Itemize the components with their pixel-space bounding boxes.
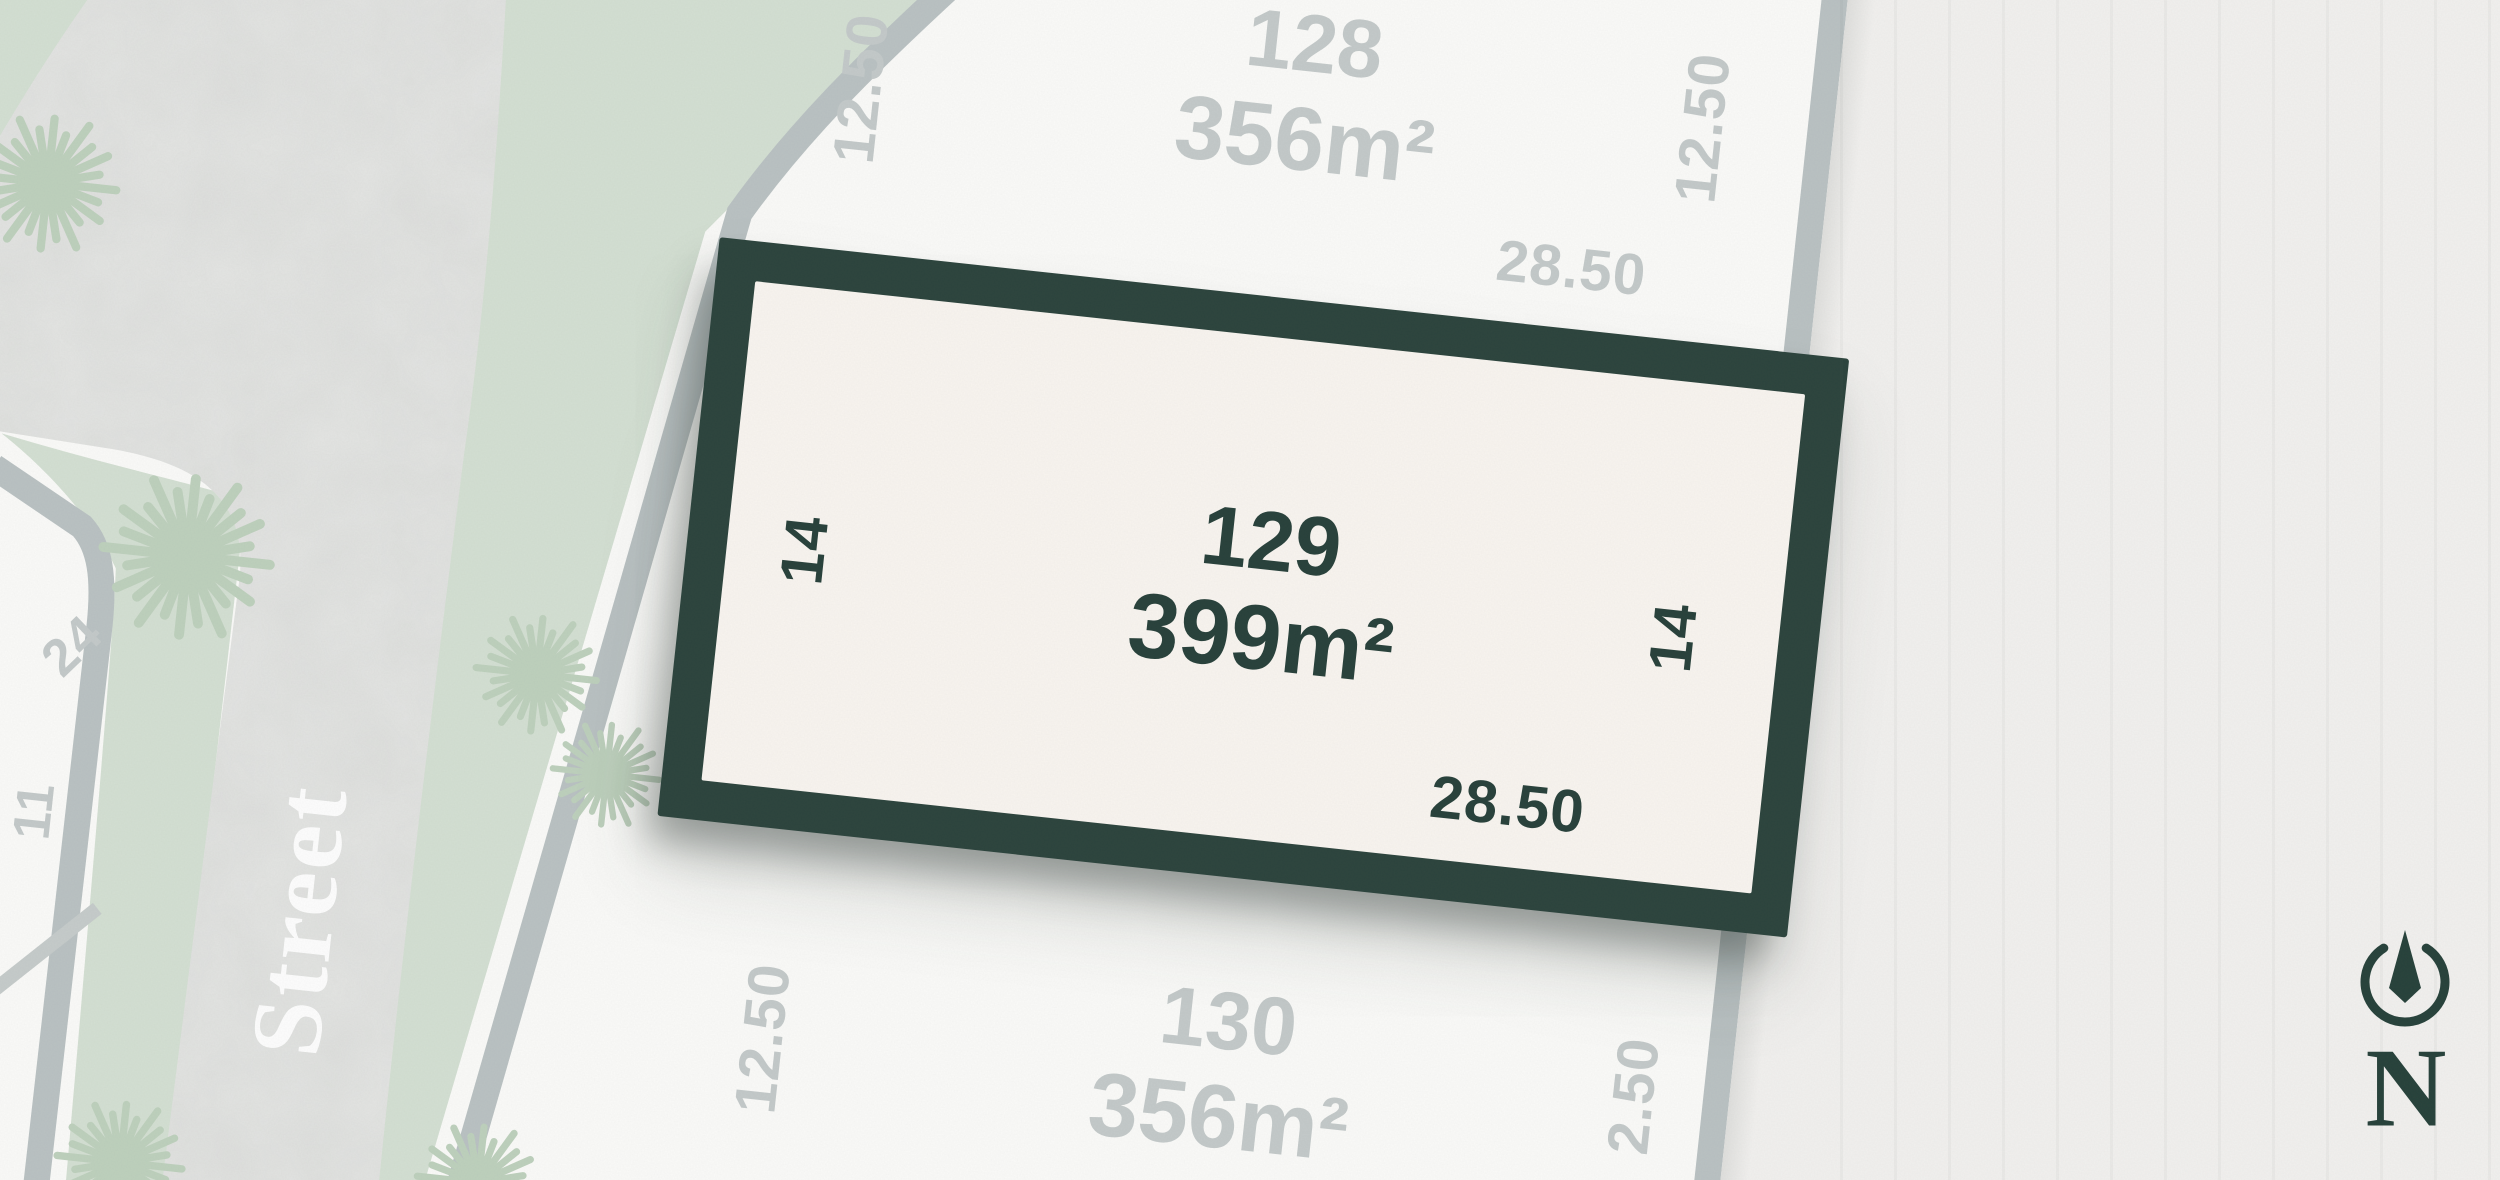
lot-129-dim-frontage: 28.50 — [1427, 767, 1588, 843]
plan-map-rotated-group: Street 24 11 128 356m² 12.50 12.50 28.50… — [0, 0, 2500, 1180]
lot-130-region[interactable]: 130 356m² — [1084, 963, 1363, 1180]
lot-128-dim-east: 12.50 — [1666, 50, 1740, 206]
lot-130-dim-east: 2.50 — [1599, 1035, 1669, 1157]
lot-130-dim-west: 12.50 — [726, 961, 800, 1117]
west-lot-dim-front: 11 — [5, 780, 63, 842]
lot-128-dim-frontage: 28.50 — [1494, 232, 1650, 306]
subdivision-plan: Street 24 11 128 356m² 12.50 12.50 28.50… — [0, 0, 2500, 1180]
lot-128-dim-west: 12.50 — [825, 11, 899, 167]
lot-128-region[interactable]: 128 356m² — [1170, 0, 1449, 204]
lot-129-dim-west: 14 — [771, 513, 838, 588]
lot-129-region[interactable]: 129 399m² 14 14 28.50 — [657, 237, 1849, 937]
lot-129-dim-east: 14 — [1640, 600, 1707, 675]
north-label: N — [2366, 1025, 2447, 1154]
compass-icon — [2330, 900, 2490, 1030]
lot-129-title-group: 129 399m² — [1123, 480, 1408, 703]
